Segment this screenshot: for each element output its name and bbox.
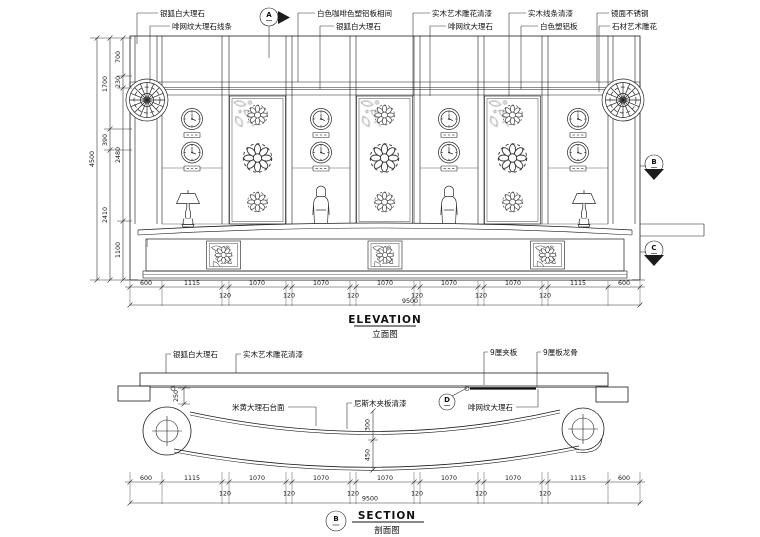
elevation-view: 银狐白大理石 啡网纹大理石线条 白色咖啡色塑铝板相间 银狐白大理石 实木艺术雕花… [89,8,704,340]
cad-drawing-sheet: 银狐白大理石 啡网纹大理石线条 白色咖啡色塑铝板相间 银狐白大理石 实木艺术雕花… [0,0,760,537]
counter-end-scroll [143,407,191,455]
dim-label: 120 [539,293,551,300]
view-title-en: SECTION [358,510,416,522]
section-depth-dimensions: 300 450 [365,409,379,473]
decorative-band [130,82,640,88]
svg-text:A: A [266,11,272,19]
callout-label: 白色咖啡色塑铝板相间 [317,8,392,18]
dim-label: 230 [115,76,122,88]
callout-label: 银狐白大理石 [173,349,218,359]
detail-marker-d: D [439,388,467,410]
section-title: B SECTION 剖面图 [326,510,424,536]
carved-panel [230,96,286,224]
person-figure [313,186,329,224]
section-step-dimension: 250 [173,386,190,407]
callout-label: 实木线条清漆 [528,8,573,18]
dim-label: 120 [283,491,295,498]
dim-label: 120 [539,491,551,498]
dim-label: 600 [618,280,630,287]
section-width-dimensions: 600 1115 120 1070 120 1070 120 1070 120 … [125,472,645,506]
callout-label: 石材艺术雕花 [612,21,657,31]
dim-label: 1070 [313,475,329,482]
counter-inset-panel [207,241,241,269]
callout-label: 银狐白大理石 [160,8,205,18]
dim-label: 250 [173,390,180,402]
dim-label: 120 [347,491,359,498]
counter-inset-panel [368,241,402,269]
decorative-band [130,90,640,96]
callout-label: 9厘板龙骨 [543,347,578,357]
dim-label: 120 [347,293,359,300]
dim-label: 120 [219,491,231,498]
dim-total-label: 9500 [362,496,378,503]
dim-label: 2480 [115,147,122,163]
svg-text:C: C [651,244,656,252]
callout-label: 银狐白大理石 [336,21,381,31]
rosette-medallion-icon [602,79,644,121]
table-lamp-icon [177,190,200,227]
dim-label: 120 [219,293,231,300]
section-view: 银狐白大理石 实木艺术雕花清漆 9厘夹板 9厘板龙骨 米黄大理石台面 尼斯木夹板… [118,347,645,536]
dim-label: 4500 [89,151,96,167]
callout-label: 啡网纹大理石线条 [172,21,232,31]
dim-label: 1115 [184,475,200,482]
carved-panel [357,96,413,224]
callout-label: 啡网纹大理石 [468,402,513,412]
dim-label: 390 [102,134,109,146]
dim-label: 1100 [115,242,122,258]
view-title-cn: 剖面图 [374,525,400,536]
dim-label: 700 [115,51,122,63]
section-marker-a: A [260,8,290,58]
view-title-cn: 立面图 [372,329,398,340]
dim-total-label: 9500 [402,298,418,305]
rosette-medallion-icon [126,79,168,121]
person-figure [441,186,457,224]
dim-label: 120 [475,491,487,498]
dim-label: 120 [283,293,295,300]
dim-label: 2410 [102,207,109,223]
dim-label: 1115 [570,475,586,482]
dim-label: 600 [140,475,152,482]
dim-label: 1070 [313,280,329,287]
slab [118,373,628,402]
dim-label: 120 [475,293,487,300]
callout-label: 白色塑铝板 [540,21,578,31]
dim-label: 1070 [505,280,521,287]
callout-label: 尼斯木夹板清漆 [354,398,407,408]
elevation-width-dimensions: 600 1115 120 1070 120 1070 120 1070 120 … [125,280,645,308]
dim-label: 1700 [102,76,109,92]
dim-label: 1070 [441,280,457,287]
counter-inset-panel [531,241,565,269]
section-marker-b: B [640,155,664,180]
reception-counter [125,223,645,280]
carved-panel [485,96,541,224]
dim-label: 600 [140,280,152,287]
dim-label: 1070 [505,475,521,482]
section-marker-c: C [640,241,664,266]
dim-label: 300 [365,419,372,431]
callout-label: 镜面不锈钢 [611,8,649,18]
dim-label: 1070 [249,475,265,482]
dim-label: 1070 [441,475,457,482]
dim-label: 450 [365,449,372,461]
svg-text:D: D [444,396,450,404]
counter-end-scroll [562,408,604,452]
counter-return [640,224,704,236]
dim-label: 1070 [377,280,393,287]
elevation-height-dimensions: 4500 1700 390 2410 700 230 2480 1100 [89,36,132,283]
curved-counter [143,407,604,470]
dim-label: 1115 [570,280,586,287]
svg-text:B: B [651,158,656,166]
view-title-en: ELEVATION [348,314,422,326]
dim-label: 120 [411,491,423,498]
dim-label: 1070 [249,280,265,287]
callout-label: 米黄大理石台面 [232,402,285,412]
callout-label: 9厘夹板 [490,347,518,357]
callout-label: 实木艺术雕花清漆 [432,8,492,18]
title-marker-b: B [333,515,338,523]
callout-label: 实木艺术雕花清漆 [243,349,303,359]
dim-label: 1115 [184,280,200,287]
elevation-title: ELEVATION 立面图 [348,314,422,340]
dim-label: 600 [618,475,630,482]
callout-label: 啡网纹大理石 [448,21,493,31]
dim-label: 1070 [377,475,393,482]
table-lamp-icon [573,190,596,227]
